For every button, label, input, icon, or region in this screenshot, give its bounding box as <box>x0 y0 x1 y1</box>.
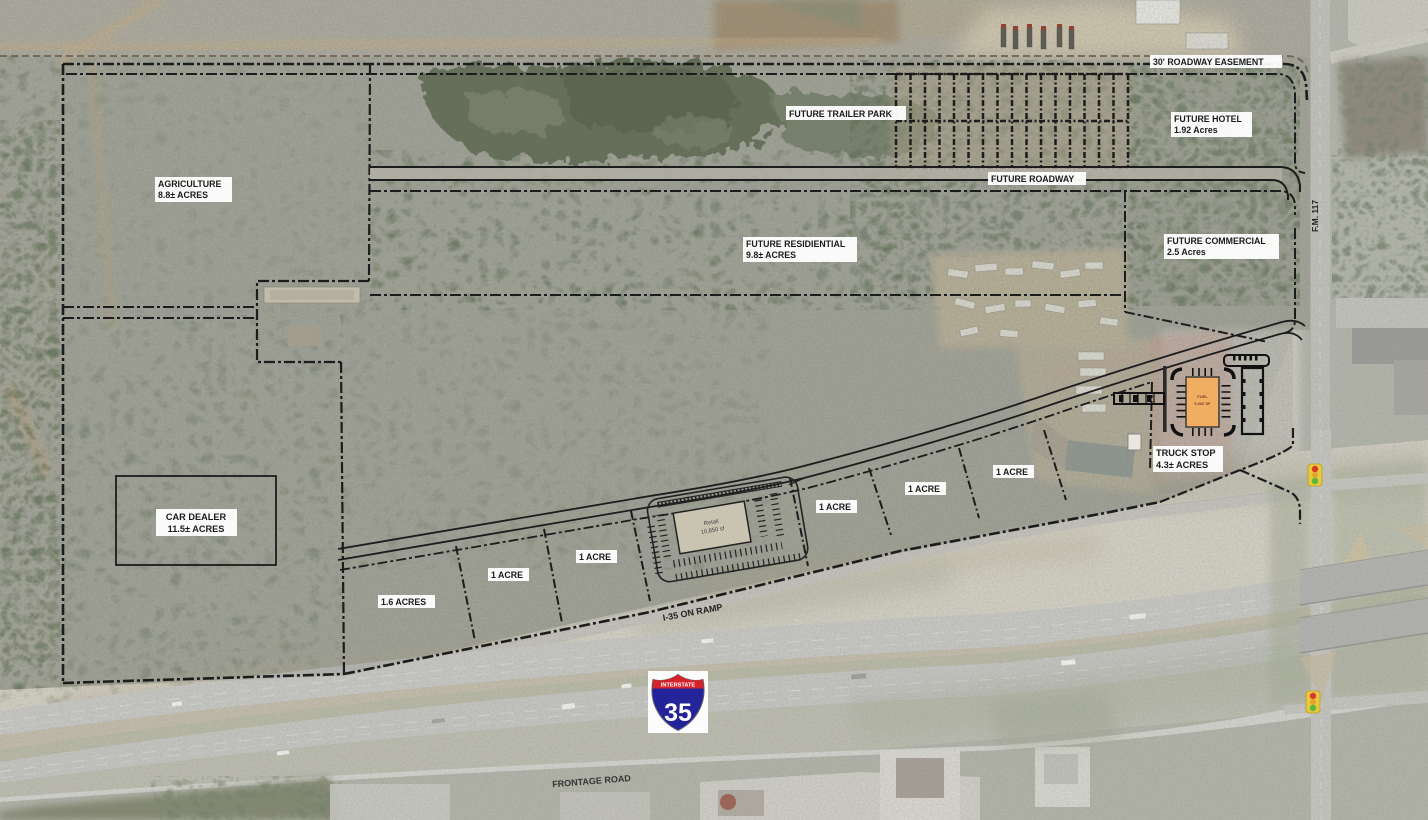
svg-text:1 ACRE: 1 ACRE <box>491 570 523 580</box>
svg-text:TRUCK STOP: TRUCK STOP <box>1156 448 1216 458</box>
svg-text:F.M. 117: F.M. 117 <box>1310 200 1320 232</box>
svg-text:AGRICULTURE: AGRICULTURE <box>158 179 221 189</box>
svg-text:1.92 Acres: 1.92 Acres <box>1174 125 1218 135</box>
svg-text:9.8± ACRES: 9.8± ACRES <box>746 250 796 260</box>
svg-text:11.5± ACRES: 11.5± ACRES <box>168 524 225 534</box>
svg-text:FUEL: FUEL <box>1197 394 1208 399</box>
svg-text:FUTURE COMMERCIAL: FUTURE COMMERCIAL <box>1167 236 1266 246</box>
svg-text:1 ACRE: 1 ACRE <box>819 502 851 512</box>
svg-text:FUTURE ROADWAY: FUTURE ROADWAY <box>991 174 1074 184</box>
svg-text:CAR DEALER: CAR DEALER <box>166 512 227 522</box>
svg-text:2.5 Acres: 2.5 Acres <box>1167 247 1206 257</box>
svg-text:1 ACRE: 1 ACRE <box>996 467 1028 477</box>
svg-text:9,000 SF: 9,000 SF <box>1194 401 1211 406</box>
svg-text:INTERSTATE: INTERSTATE <box>661 683 696 689</box>
svg-text:4.3± ACRES: 4.3± ACRES <box>1156 460 1208 470</box>
svg-text:1.6 ACRES: 1.6 ACRES <box>381 597 426 607</box>
svg-text:1 ACRE: 1 ACRE <box>908 484 940 494</box>
svg-text:30' ROADWAY EASEMENT: 30' ROADWAY EASEMENT <box>1153 57 1264 67</box>
svg-text:8.8± ACRES: 8.8± ACRES <box>158 190 208 200</box>
svg-text:35: 35 <box>664 699 692 727</box>
svg-text:FUTURE RESIDIENTIAL: FUTURE RESIDIENTIAL <box>746 239 846 249</box>
svg-text:FUTURE TRAILER PARK: FUTURE TRAILER PARK <box>789 109 893 119</box>
svg-text:FUTURE HOTEL: FUTURE HOTEL <box>1174 114 1243 124</box>
svg-text:1 ACRE: 1 ACRE <box>579 552 611 562</box>
